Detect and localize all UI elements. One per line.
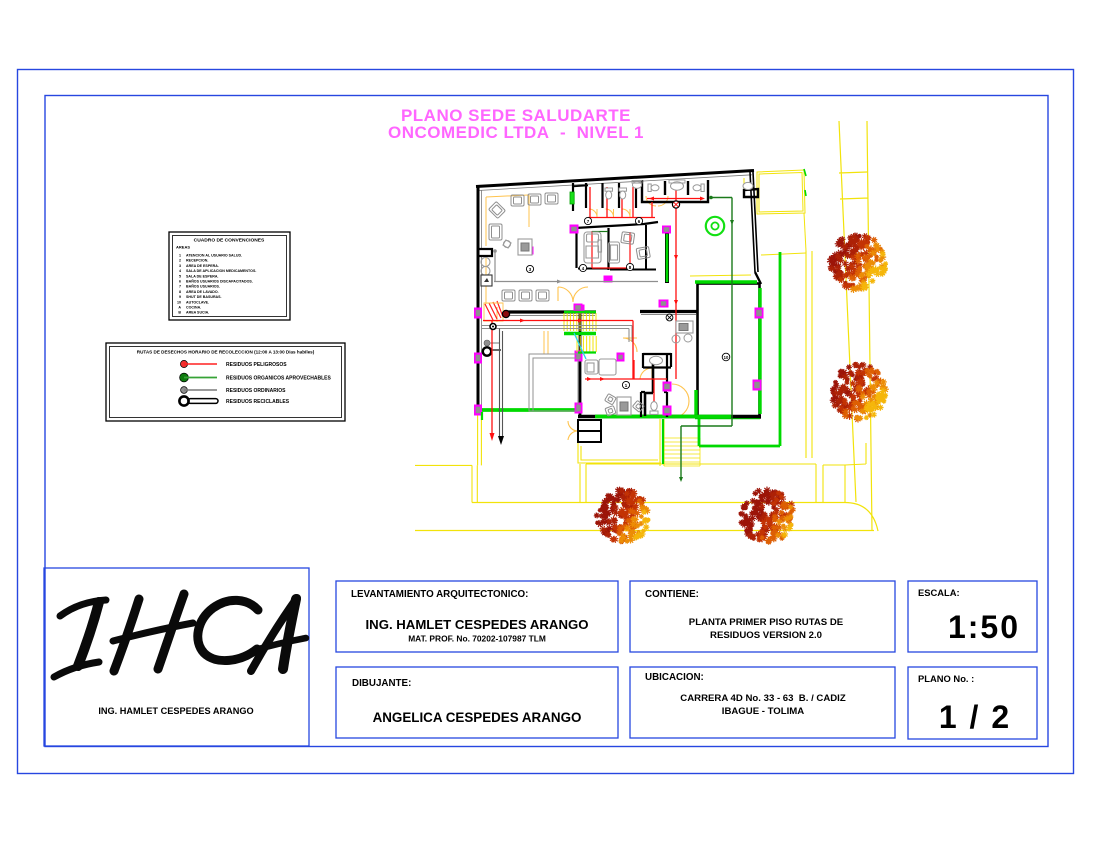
svg-text:RESIDUOS PELIGROSOS: RESIDUOS PELIGROSOS [226, 362, 287, 368]
svg-text:10: 10 [177, 300, 181, 304]
svg-text:10: 10 [724, 355, 729, 360]
svg-text:3: 3 [179, 264, 181, 268]
svg-text:A: A [178, 306, 181, 310]
svg-text:AREA DE ESPERA.: AREA DE ESPERA. [186, 264, 219, 268]
svg-text:CUADRO DE CONVENCIONES: CUADRO DE CONVENCIONES [194, 238, 265, 244]
svg-text:CONTIENE:: CONTIENE: [645, 589, 699, 600]
svg-text:1 / 2: 1 / 2 [939, 699, 1011, 735]
svg-text:PLANTA PRIMER PISO RUTAS DE: PLANTA PRIMER PISO RUTAS DE [689, 617, 844, 628]
svg-text:ING. HAMLET CESPEDES ARANGO: ING. HAMLET CESPEDES ARANGO [98, 706, 253, 716]
svg-text:RESIDUOS ORDINARIOS: RESIDUOS ORDINARIOS [226, 388, 286, 394]
svg-text:ING. HAMLET CESPEDES ARANGO: ING. HAMLET CESPEDES ARANGO [366, 617, 589, 632]
svg-text:BAÑOS USUARIOS.: BAÑOS USUARIOS. [186, 284, 220, 289]
svg-text:4: 4 [179, 269, 181, 273]
svg-text:1:50: 1:50 [948, 609, 1020, 645]
svg-text:RESIDUOS VERSION 2.0: RESIDUOS VERSION 2.0 [710, 630, 822, 641]
svg-text:9: 9 [179, 295, 181, 299]
svg-text:B: B [178, 311, 181, 315]
svg-text:2: 2 [179, 259, 181, 263]
svg-text:RESIDUOS ORGANICOS APROVECHABL: RESIDUOS ORGANICOS APROVECHABLES [226, 376, 331, 382]
svg-text:DIBUJANTE:: DIBUJANTE: [352, 678, 411, 689]
svg-text:COCINA.: COCINA. [186, 306, 201, 310]
svg-text:1: 1 [179, 254, 181, 258]
svg-text:AREA SUCIA.: AREA SUCIA. [186, 311, 209, 315]
svg-text:PLANO No. :: PLANO No. : [918, 673, 974, 684]
svg-text:RUTAS DE DESECHOS HORARIO DE R: RUTAS DE DESECHOS HORARIO DE RECOLECCION… [137, 350, 315, 355]
svg-text:LEVANTAMIENTO ARQUITECTONICO:: LEVANTAMIENTO ARQUITECTONICO: [351, 589, 528, 600]
svg-text:BAÑOS USUARIOS DISCAPACITADOS.: BAÑOS USUARIOS DISCAPACITADOS. [186, 279, 253, 284]
svg-text:RECEPCION.: RECEPCION. [186, 259, 208, 263]
svg-text:SALA DE ESPERA.: SALA DE ESPERA. [186, 274, 218, 278]
svg-text:RESIDUOS RECICLABLES: RESIDUOS RECICLABLES [226, 399, 290, 405]
svg-text:SALA DE APLICACION MEDICAMENTO: SALA DE APLICACION MEDICAMENTOS. [186, 269, 256, 273]
svg-text:8: 8 [179, 290, 181, 294]
svg-text:SHUT DE BASURAS.: SHUT DE BASURAS. [186, 295, 222, 299]
svg-text:ANGELICA CESPEDES ARANGO: ANGELICA CESPEDES ARANGO [373, 710, 582, 725]
svg-text:ATENCION AL USUARIO SALUD.: ATENCION AL USUARIO SALUD. [186, 254, 242, 258]
svg-text:MAT. PROF. No. 70202-107987 TL: MAT. PROF. No. 70202-107987 TLM [408, 634, 546, 644]
svg-text:ESCALA:: ESCALA: [918, 587, 960, 598]
svg-text:6: 6 [179, 280, 181, 284]
svg-text:IBAGUE - TOLIMA: IBAGUE - TOLIMA [722, 706, 805, 717]
svg-text:AREAS: AREAS [176, 245, 190, 250]
svg-text:7: 7 [179, 285, 181, 289]
svg-text:AUTOCLAVE.: AUTOCLAVE. [186, 300, 209, 304]
svg-text:CARRERA 4D No. 33 - 63 B. / C: CARRERA 4D No. 33 - 63 B. / CADIZ [680, 693, 846, 704]
svg-text:ONCOMEDIC LTDA - NIVEL 1: ONCOMEDIC LTDA - NIVEL 1 [388, 123, 644, 142]
svg-text:AREA DE LAVADO.: AREA DE LAVADO. [186, 290, 219, 294]
svg-text:5: 5 [179, 274, 181, 278]
svg-text:UBICACION:: UBICACION: [645, 672, 704, 683]
